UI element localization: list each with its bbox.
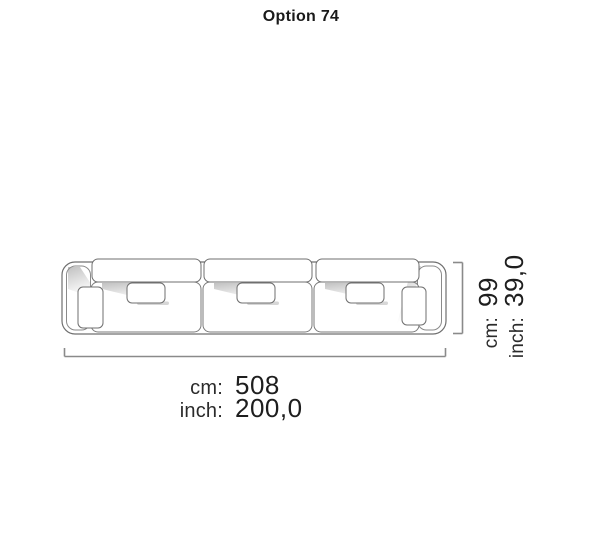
height-inch-label: inch:: [507, 317, 529, 365]
height-dimension-line: [453, 263, 463, 334]
width-dimension-line: [65, 348, 446, 357]
width-inch-value: 200,0: [235, 393, 303, 424]
spec-sheet-page: Option 74: [0, 0, 602, 542]
sofa-back-cushions: [92, 259, 419, 282]
width-cm-label: cm:: [143, 377, 223, 400]
width-cm-row: cm: 508: [143, 370, 383, 393]
page-title: Option 74: [0, 8, 602, 26]
width-dimension-label: cm: 508 inch: 200,0: [143, 370, 383, 416]
height-dimension-label: cm: 99 inch: 39,0: [473, 245, 533, 365]
sofa-top-view-drawing: [50, 245, 475, 370]
height-cm-label: cm:: [481, 317, 503, 365]
height-inch-value: 39,0: [499, 254, 530, 307]
height-cm-row: cm: 99: [473, 245, 499, 365]
width-inch-label: inch:: [143, 400, 223, 423]
